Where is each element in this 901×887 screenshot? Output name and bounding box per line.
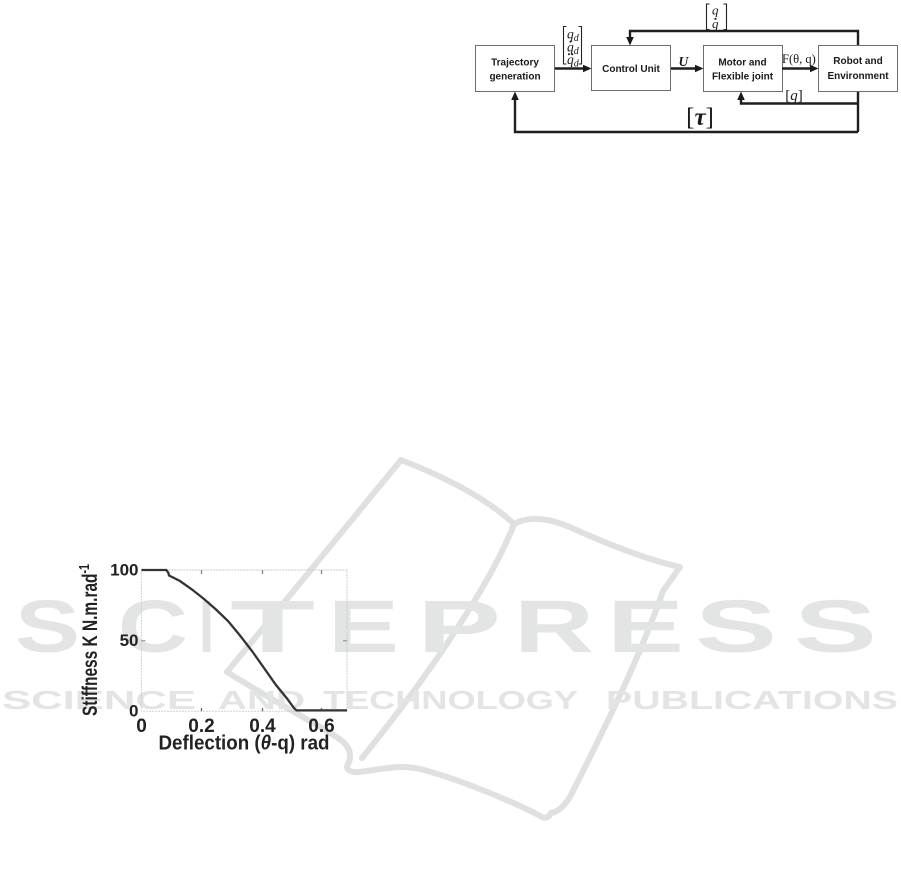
svg-text:AND: AND bbox=[218, 685, 305, 715]
svg-text:S: S bbox=[695, 585, 777, 668]
svg-text:50: 50 bbox=[120, 631, 139, 650]
svg-text:E: E bbox=[328, 585, 399, 668]
svg-text:C: C bbox=[118, 585, 188, 668]
svg-text:Robot and: Robot and bbox=[833, 56, 882, 67]
svg-text:[τ]: [τ] bbox=[686, 104, 714, 131]
svg-text:Deflection (θ-q) rad: Deflection (θ-q) rad bbox=[159, 733, 330, 755]
svg-text:E: E bbox=[607, 585, 684, 668]
svg-text:S: S bbox=[794, 585, 877, 668]
svg-text:Motor and: Motor and bbox=[718, 58, 766, 69]
svg-text:TECHNOLOGY: TECHNOLOGY bbox=[323, 685, 578, 715]
svg-text:P: P bbox=[417, 585, 501, 668]
svg-text:F(θ, q): F(θ, q) bbox=[782, 52, 816, 66]
svg-text:0: 0 bbox=[136, 716, 147, 737]
svg-text:R: R bbox=[514, 585, 594, 668]
svg-text:U: U bbox=[679, 54, 690, 69]
svg-text:[q]: [q] bbox=[785, 88, 803, 104]
svg-text:Environment: Environment bbox=[827, 71, 889, 82]
svg-text:S: S bbox=[15, 585, 80, 668]
svg-text:Trajectory: Trajectory bbox=[491, 58, 539, 69]
svg-text:PUBLICATIONS: PUBLICATIONS bbox=[606, 685, 898, 715]
svg-text:100: 100 bbox=[110, 561, 138, 580]
svg-text:Flexible joint: Flexible joint bbox=[712, 72, 774, 83]
svg-text:T: T bbox=[230, 585, 315, 668]
svg-text:Stiffness K N.m.rad-1: Stiffness K N.m.rad-1 bbox=[77, 564, 102, 716]
svg-text:Control Unit: Control Unit bbox=[602, 64, 660, 75]
svg-text:generation: generation bbox=[489, 72, 540, 83]
